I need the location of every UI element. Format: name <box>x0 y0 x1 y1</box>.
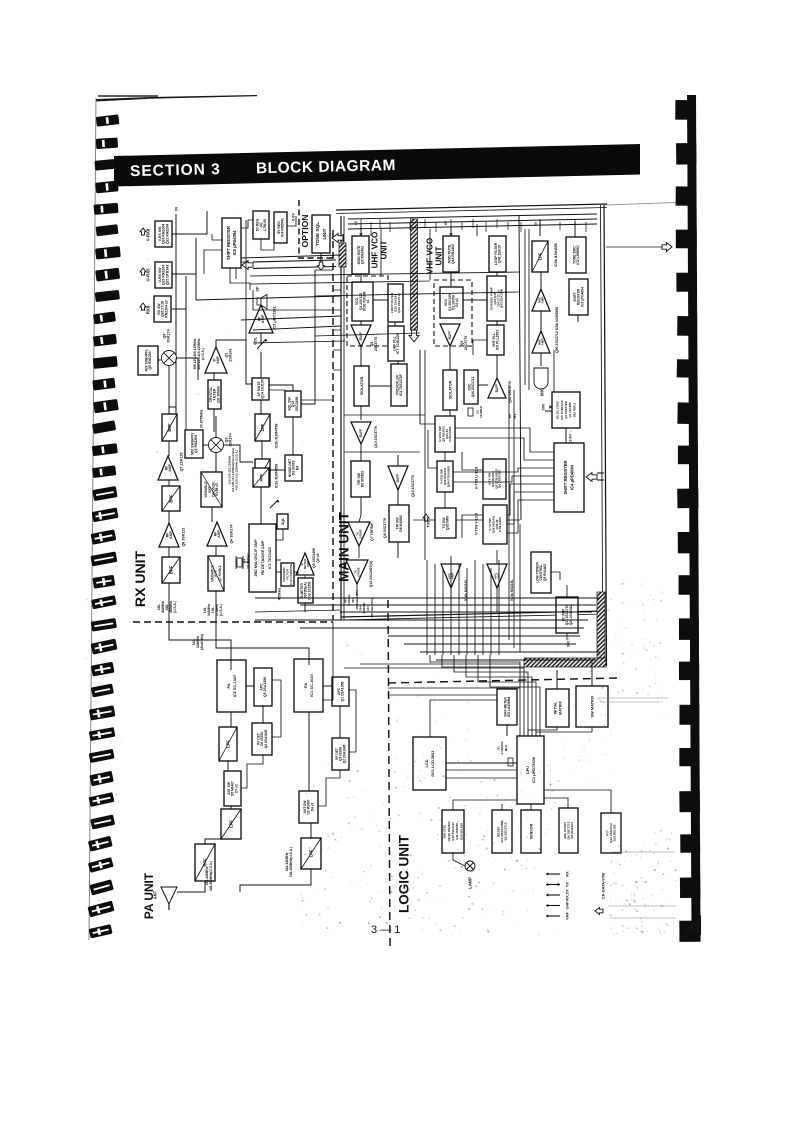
svg-text:ISOLATOR: ISOLATOR <box>448 380 452 399</box>
svg-text:IC2b NJM4558: IC2b NJM4558 <box>274 424 278 449</box>
svg-text:OPTION: OPTION <box>300 214 310 247</box>
svg-text:RX,TX: RX,TX <box>564 889 569 901</box>
svg-text:Q15 2SC3770: Q15 2SC3770 <box>411 475 415 497</box>
svg-text:LOGIC UNIT: LOGIC UNIT <box>397 834 412 913</box>
svg-text:S-METERDET(50μA)Q10 1S1552: S-METERDET(50μA)Q10 1S1552 <box>300 581 311 599</box>
svg-text:SQL: SQL <box>281 517 285 525</box>
svg-text:Q13 2SC2407(A): Q13 2SC2407(A) <box>369 561 373 588</box>
svg-text:HPF: HPF <box>258 473 263 481</box>
svg-text:PRESCALERIC4 TD6127BF: PRESCALERIC4 TD6127BF <box>395 374 403 396</box>
svg-text:Q8 3SK121: Q8 3SK121 <box>181 527 185 546</box>
svg-text:U-RX SWQ23 RN2204Q25 DTB143: U-RX SWQ23 RN2204Q25 DTB143 <box>158 265 170 285</box>
svg-text:ISOLATOR: ISOLATOR <box>360 376 364 395</box>
svg-text:LPF: LPF <box>308 849 313 857</box>
svg-text:Q7 TRF959: Q7 TRF959 <box>370 523 374 541</box>
svg-text:UHF: UHF <box>564 901 569 910</box>
svg-text:TX SWQ26 IMI6: TX SWQ26 IMI6 <box>442 516 450 530</box>
svg-text:TONE ENCIC2 LM556C: TONE ENCIC2 LM556C <box>572 245 580 265</box>
svg-text:MOD MUTEQ9 RN1402: MOD MUTEQ9 RN1402 <box>357 245 365 264</box>
svg-text:CHARGE PUMPQ44,Q452SC2712 x2Q4: CHARGE PUMPQ44,Q452SC2712 x2Q43 2SA1048 <box>490 287 504 310</box>
svg-text:13.8V→: 13.8V→ <box>568 430 572 443</box>
svg-text:SP: SP <box>254 286 259 292</box>
svg-text:SW MATRIX: SW MATRIX <box>589 695 594 717</box>
svg-text:BUFF: BUFF <box>359 429 363 438</box>
svg-text:BUFF: BUFF <box>495 384 499 393</box>
svg-text:LPF: LPF <box>228 820 233 828</box>
svg-text:Q30 2SC2712 IC5b NJM4558: Q30 2SC2712 IC5b NJM4558 <box>555 307 559 353</box>
svg-text:MOD MUTEQ14 RN1402: MOD MUTEQ14 RN1402 <box>447 244 455 264</box>
svg-text:BPF: BPF <box>168 494 173 503</box>
svg-text:MIC UP/DNQ4 2SC2712Q3 RN2404: MIC UP/DNQ4 2SC2712Q3 RN2404 <box>563 821 574 839</box>
svg-text:AF MUTEQ14 2SJ105: AF MUTEQ14 2SJ105 <box>257 379 265 398</box>
svg-text:HPF: HPF <box>202 858 207 867</box>
svg-text:Q8 2SC3779: Q8 2SC3779 <box>383 518 387 538</box>
svg-text:LPF: LPF <box>225 740 230 748</box>
svg-text:30.875MHz: 30.875MHz <box>199 409 203 428</box>
svg-text:INITIALMATRIX: INITIALMATRIX <box>553 701 562 715</box>
svg-text:MICAMP: MICAMP <box>538 296 545 303</box>
svg-text:MIX SW(HPF)Q5 RN1204: MIX SW(HPF)Q5 RN1204 <box>144 350 152 372</box>
svg-text:SECTION 3: SECTION 3 <box>130 161 221 180</box>
svg-text:0V: 0V <box>173 206 178 211</box>
svg-text:S/RF METERIC5 LA4358M: S/RF METERIC5 LA4358M <box>503 697 511 718</box>
svg-text:LOW POWERCONTROLQ5 RN1402: LOW POWERCONTROLQ5 RN1402 <box>536 562 547 583</box>
svg-text:ANT: ANT <box>152 890 157 899</box>
svg-text:3 — 1: 3 — 1 <box>371 924 400 936</box>
svg-text:BUFF: BUFF <box>359 332 363 341</box>
svg-text:LOOP FILTERQ18 2SK184Q19 2SC27: LOOP FILTERQ18 2SK184Q19 2SC2712 <box>390 292 401 313</box>
svg-text:TX: TX <box>564 882 569 887</box>
svg-text:SHIFT REGISTERIC6 μPD4094: SHIFT REGISTERIC6 μPD4094 <box>226 226 237 260</box>
svg-text:Q7 2SK125: Q7 2SK125 <box>179 452 183 471</box>
svg-text:RX: RX <box>564 871 569 877</box>
svg-text:DC-DC CONVIC5 TL499ACPQ3 2SB77: DC-DC CONVIC5 TL499ACPQ3 2SB772MQ2 2SC94… <box>556 400 577 420</box>
svg-text:U-VCO SWQ8 RN1402Q30,31DTB143E: U-VCO SWQ8 RN1402Q30,31DTB143ES <box>438 426 452 442</box>
svg-text:T/R SWD6 MA862: T/R SWD6 MA862 <box>357 471 365 488</box>
svg-text:V-RX8: V-RX8 <box>146 228 151 241</box>
svg-text:IC4b MS218L: IC4b MS218L <box>464 579 468 600</box>
svg-text:BPF: BPF <box>168 565 173 574</box>
svg-text:Q4 3SK174: Q4 3SK174 <box>229 523 233 543</box>
svg-text:BUFF: BUFF <box>448 331 452 340</box>
svg-text:LPF: LPF <box>537 252 542 260</box>
svg-text:MIC: MIC <box>540 388 545 396</box>
svg-text:SHIFT REGISTERIC4 μPD4094: SHIFT REGISTERIC4 μPD4094 <box>563 461 575 495</box>
svg-text:V-TX8 V-13.8: V-TX8 V-13.8 <box>474 513 478 535</box>
svg-text:T/R SWD8 MA862: T/R SWD8 MA862 <box>395 515 403 532</box>
svg-text:BUFF: BUFF <box>396 474 400 483</box>
svg-text:V-RX SWQ24 RN2204Q22 RN2204: V-RX SWQ24 RN2204Q22 RN2204 <box>158 224 170 244</box>
svg-text:Q10 2SC3776: Q10 2SC3776 <box>374 426 378 448</box>
svg-text:LPF: LPF <box>260 423 265 431</box>
svg-text:CRYSTALFILTER(D) 30M98: CRYSTALFILTER(D) 30M98 <box>209 386 221 402</box>
svg-text:BPF: BPF <box>167 423 172 432</box>
svg-text:MICAMP: MICAMP <box>538 338 545 345</box>
svg-text:30V: 30V <box>540 403 545 410</box>
svg-text:IC5b NJM4558: IC5b NJM4558 <box>554 243 558 266</box>
svg-text:MIX SW(HPF)Q2 RN1204: MIX SW(HPF)Q2 RN1204 <box>190 433 198 455</box>
svg-text:RX UNIT: RX UNIT <box>132 551 148 608</box>
svg-text:VOL: VOL <box>252 336 257 345</box>
svg-text:VHF: VHF <box>564 911 569 919</box>
svg-text:BLOCK DIAGRAM: BLOCK DIAGRAM <box>256 157 396 177</box>
svg-text:CK-DATA-STB: CK-DATA-STB <box>600 873 605 899</box>
svg-text:IC2a NJM4558: IC2a NJM4558 <box>274 464 278 489</box>
svg-text:SENSOR: SENSOR <box>529 823 533 839</box>
svg-text:APCAMP: APCAMP <box>494 572 501 579</box>
svg-text:IC3 μPC1241: IC3 μPC1241 <box>271 305 276 329</box>
svg-text:U-RX5: U-RX5 <box>146 268 151 282</box>
svg-text:0.6V: 0.6V <box>290 213 295 221</box>
svg-text:LAMP: LAMP <box>467 877 472 889</box>
svg-text:LOOP FILTERQ42 2SK19: LOOP FILTERQ42 2SK19 <box>494 242 502 265</box>
